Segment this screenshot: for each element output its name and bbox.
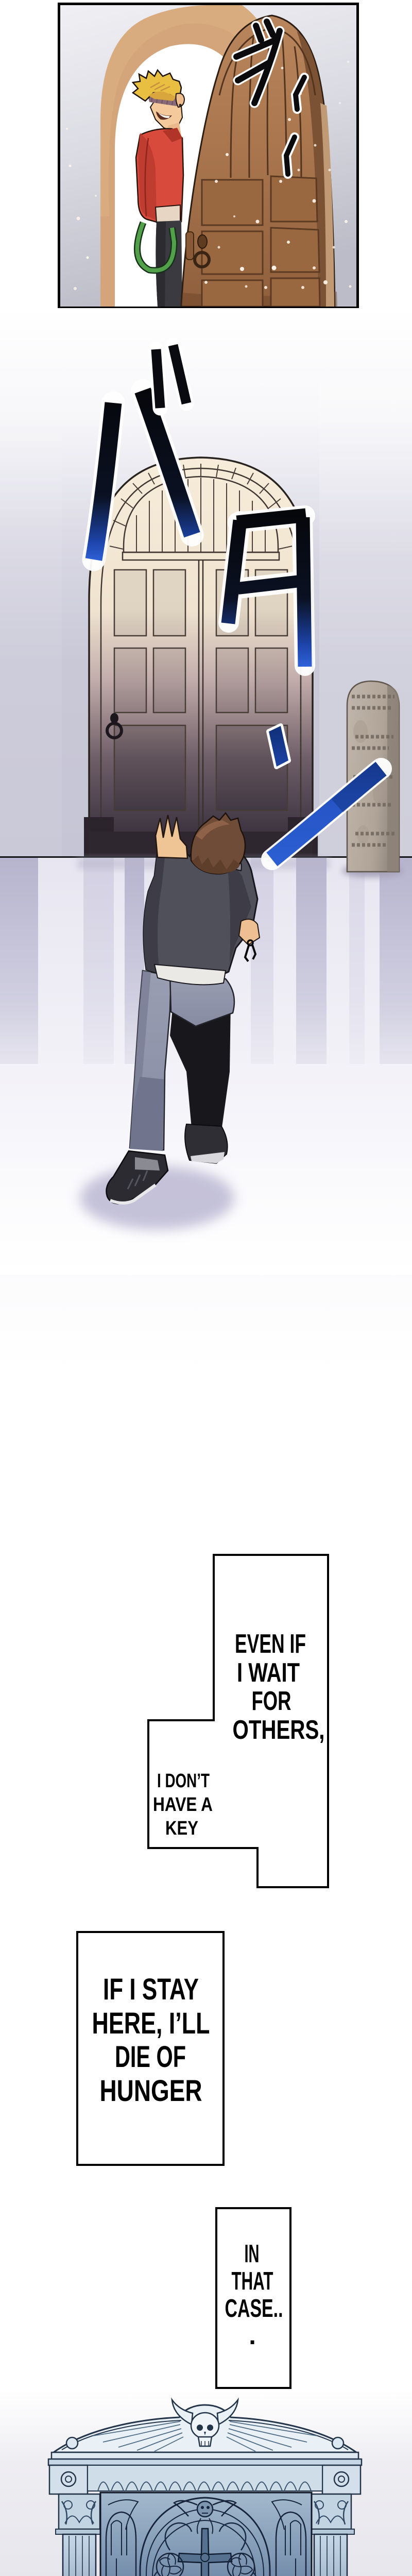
svg-text:IF I STAY: IF I STAY <box>103 1973 199 2006</box>
svg-text:I WAIT: I WAIT <box>237 1658 300 1688</box>
svg-text:OTHERS,: OTHERS, <box>233 1715 325 1745</box>
svg-text:THAT: THAT <box>232 2267 273 2295</box>
svg-text:DIE OF: DIE OF <box>115 2040 186 2074</box>
svg-text:CASE..: CASE.. <box>225 2295 283 2323</box>
svg-text:.: . <box>249 2322 256 2350</box>
svg-text:IN: IN <box>245 2240 260 2268</box>
svg-text:I DON’T: I DON’T <box>157 1770 210 1792</box>
svg-text:HERE, I’LL: HERE, I’LL <box>92 2007 210 2040</box>
svg-text:HUNGER: HUNGER <box>100 2074 202 2108</box>
svg-text:KEY: KEY <box>165 1818 198 1839</box>
svg-text:FOR: FOR <box>252 1686 291 1716</box>
svg-text:EVEN IF: EVEN IF <box>235 1629 306 1659</box>
svg-text:HAVE A: HAVE A <box>153 1794 213 1816</box>
